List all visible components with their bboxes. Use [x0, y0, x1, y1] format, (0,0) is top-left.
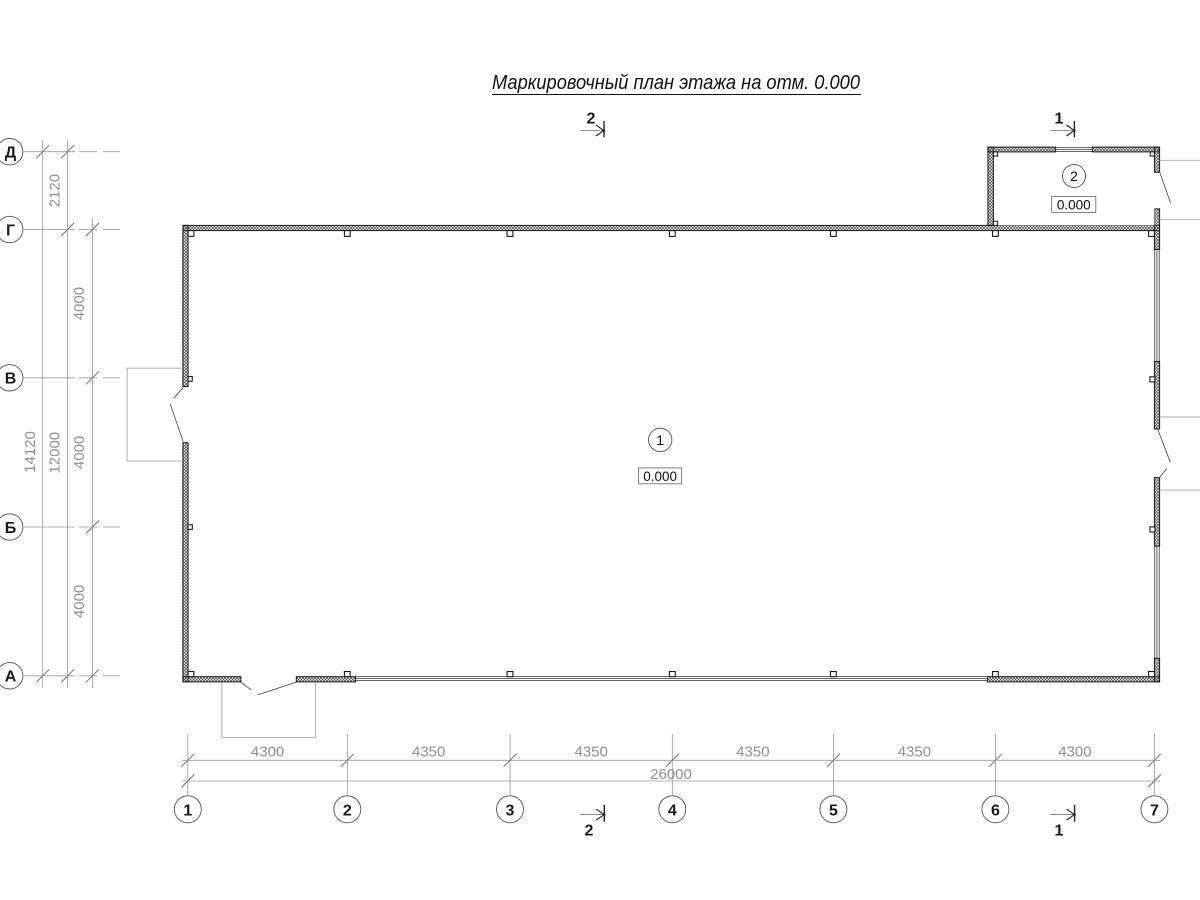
- svg-text:26000: 26000: [650, 766, 692, 783]
- svg-text:1: 1: [183, 802, 192, 819]
- svg-text:4: 4: [668, 802, 677, 819]
- svg-text:4300: 4300: [251, 744, 284, 761]
- svg-text:В: В: [5, 371, 17, 388]
- svg-text:1: 1: [656, 432, 664, 448]
- svg-text:1: 1: [1055, 111, 1064, 128]
- svg-text:4350: 4350: [575, 744, 608, 761]
- svg-text:4000: 4000: [71, 436, 88, 469]
- svg-text:2: 2: [1070, 168, 1078, 184]
- svg-text:4000: 4000: [71, 585, 88, 618]
- svg-text:2120: 2120: [46, 174, 63, 207]
- svg-text:4350: 4350: [412, 744, 445, 761]
- svg-text:2: 2: [343, 802, 352, 819]
- svg-text:4350: 4350: [736, 744, 769, 761]
- svg-text:А: А: [5, 669, 17, 686]
- svg-text:Б: Б: [5, 520, 17, 537]
- svg-text:4300: 4300: [1058, 744, 1091, 761]
- svg-text:Д: Д: [5, 145, 17, 162]
- svg-text:2: 2: [587, 111, 596, 128]
- svg-text:0.000: 0.000: [1057, 197, 1091, 212]
- svg-text:1: 1: [1055, 823, 1064, 840]
- svg-text:Г: Г: [6, 222, 15, 239]
- svg-text:4350: 4350: [898, 744, 931, 761]
- svg-text:3: 3: [506, 802, 515, 819]
- svg-text:0.000: 0.000: [643, 469, 677, 484]
- svg-text:2: 2: [585, 823, 594, 840]
- svg-text:5: 5: [829, 802, 838, 819]
- svg-text:Маркировочный план этажа на от: Маркировочный план этажа на отм. 0.000: [492, 72, 860, 94]
- svg-text:6: 6: [991, 802, 1000, 819]
- svg-text:4000: 4000: [71, 287, 88, 320]
- svg-text:14120: 14120: [22, 431, 39, 473]
- svg-text:12000: 12000: [46, 432, 63, 474]
- svg-text:7: 7: [1150, 802, 1159, 819]
